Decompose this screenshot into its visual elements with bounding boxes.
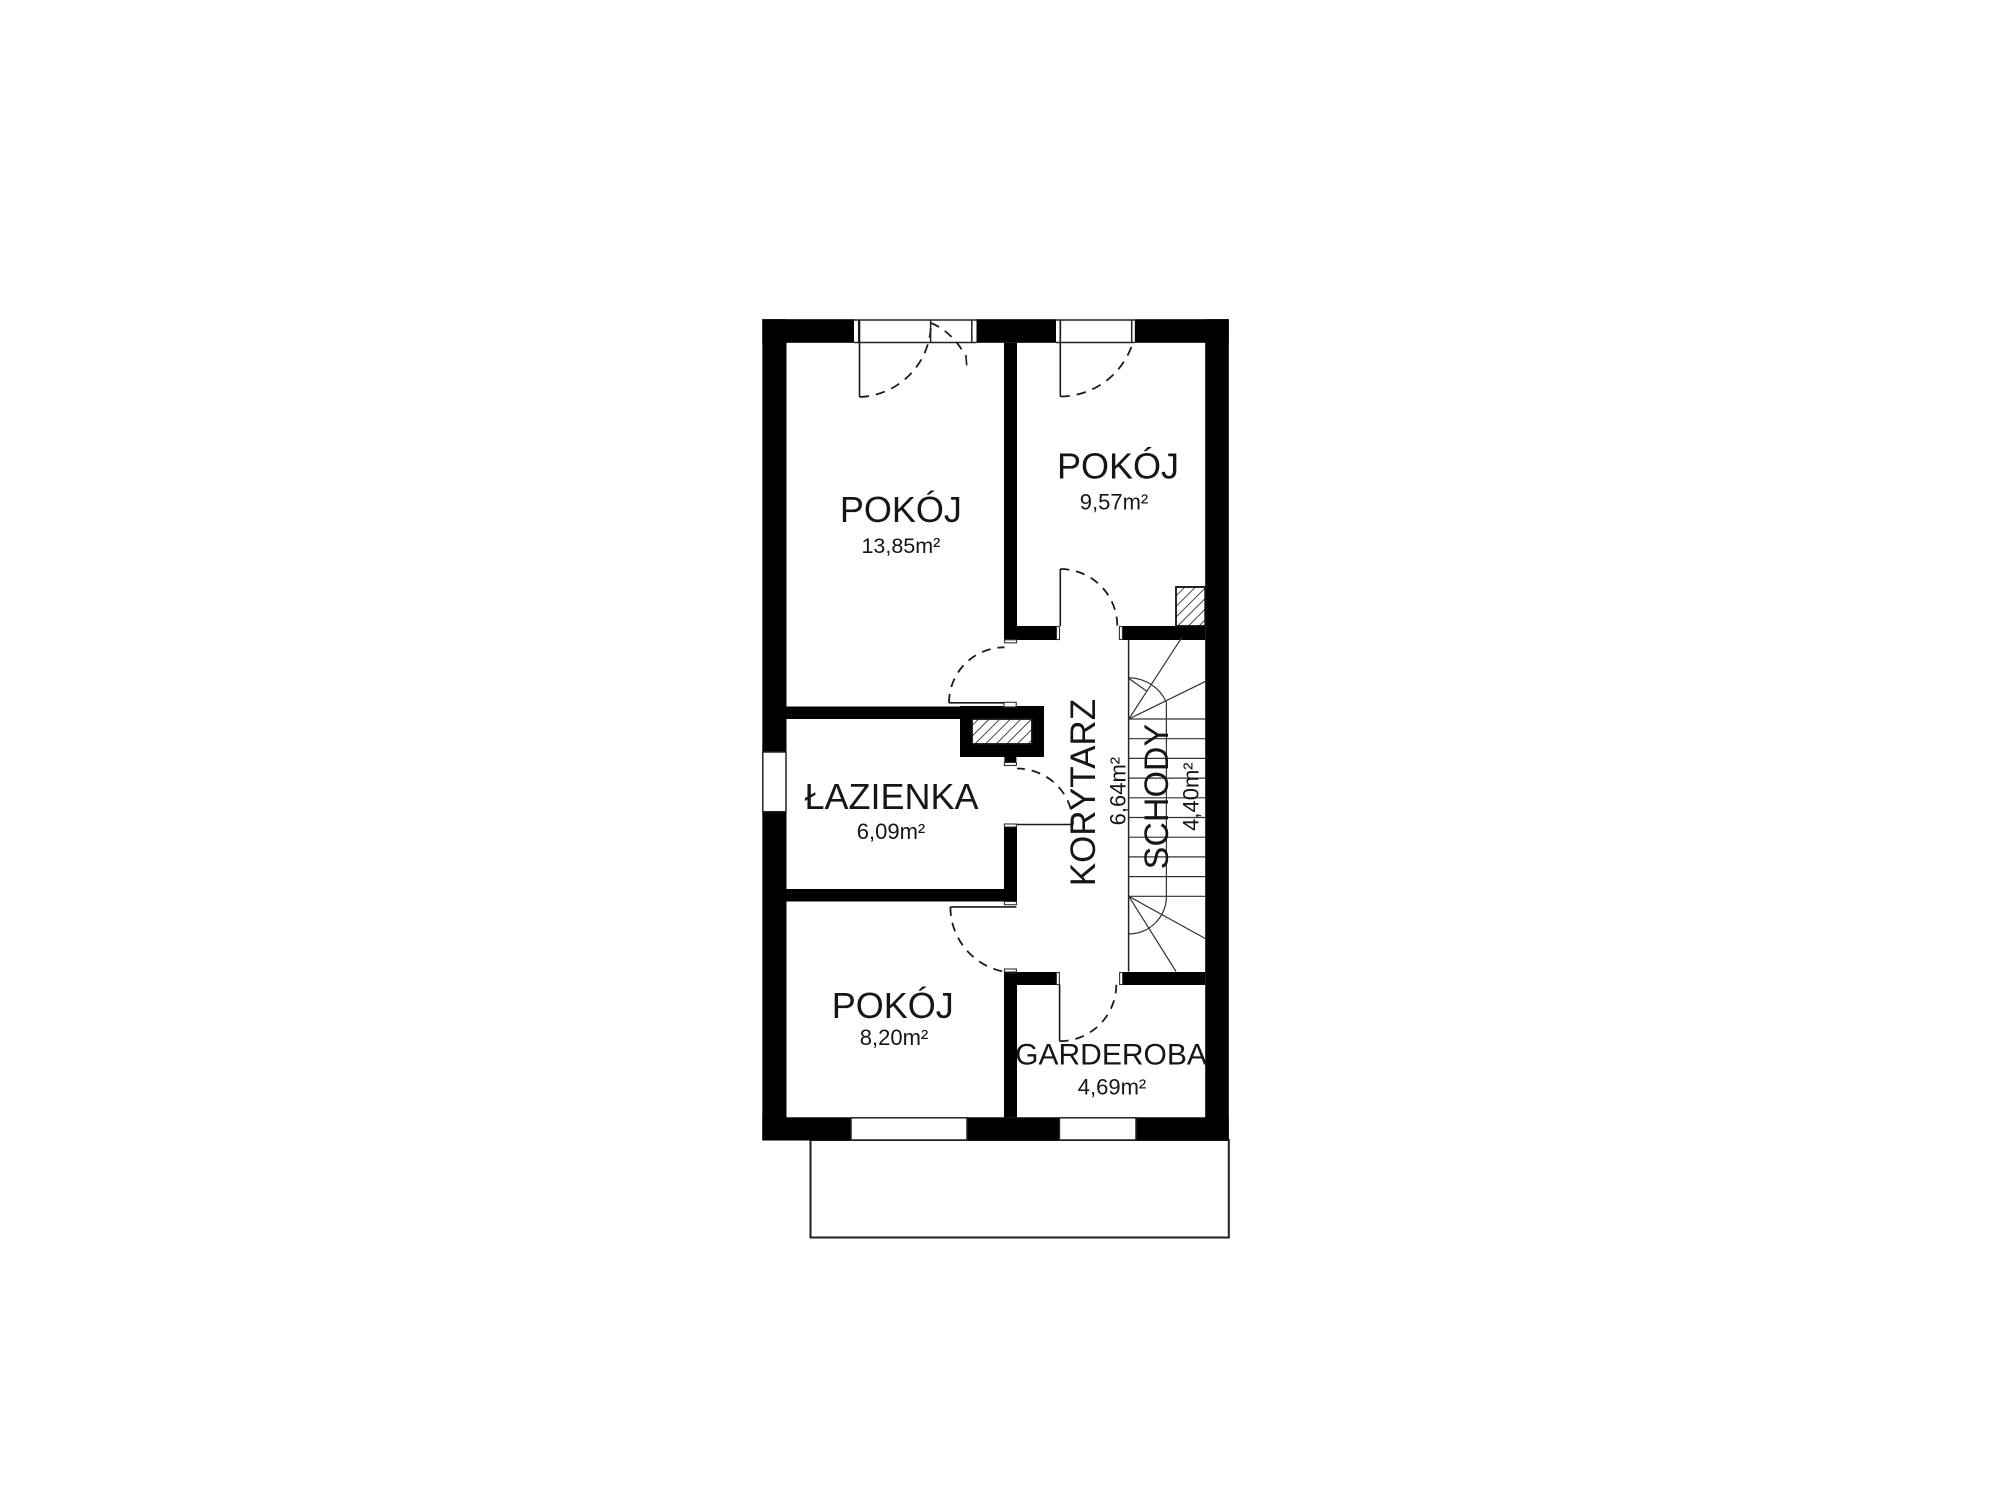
svg-text:POKÓJ: POKÓJ: [832, 985, 954, 1026]
svg-text:POKÓJ: POKÓJ: [1057, 446, 1179, 487]
svg-text:POKÓJ: POKÓJ: [840, 489, 962, 530]
svg-text:KORYTARZ: KORYTARZ: [1064, 699, 1103, 886]
svg-text:6,64m²: 6,64m²: [1106, 757, 1131, 825]
svg-text:4,40m²: 4,40m²: [1179, 762, 1204, 830]
svg-text:4,69m²: 4,69m²: [1078, 1075, 1146, 1100]
svg-text:6,09m²: 6,09m²: [857, 819, 925, 844]
svg-text:13,85m²: 13,85m²: [861, 534, 940, 558]
svg-text:ŁAZIENKA: ŁAZIENKA: [804, 776, 978, 817]
svg-text:SCHODY: SCHODY: [1138, 724, 1176, 869]
svg-text:GARDEROBA: GARDEROBA: [1015, 1039, 1207, 1072]
svg-text:9,57m²: 9,57m²: [1080, 489, 1148, 514]
svg-text:8,20m²: 8,20m²: [860, 1025, 928, 1050]
